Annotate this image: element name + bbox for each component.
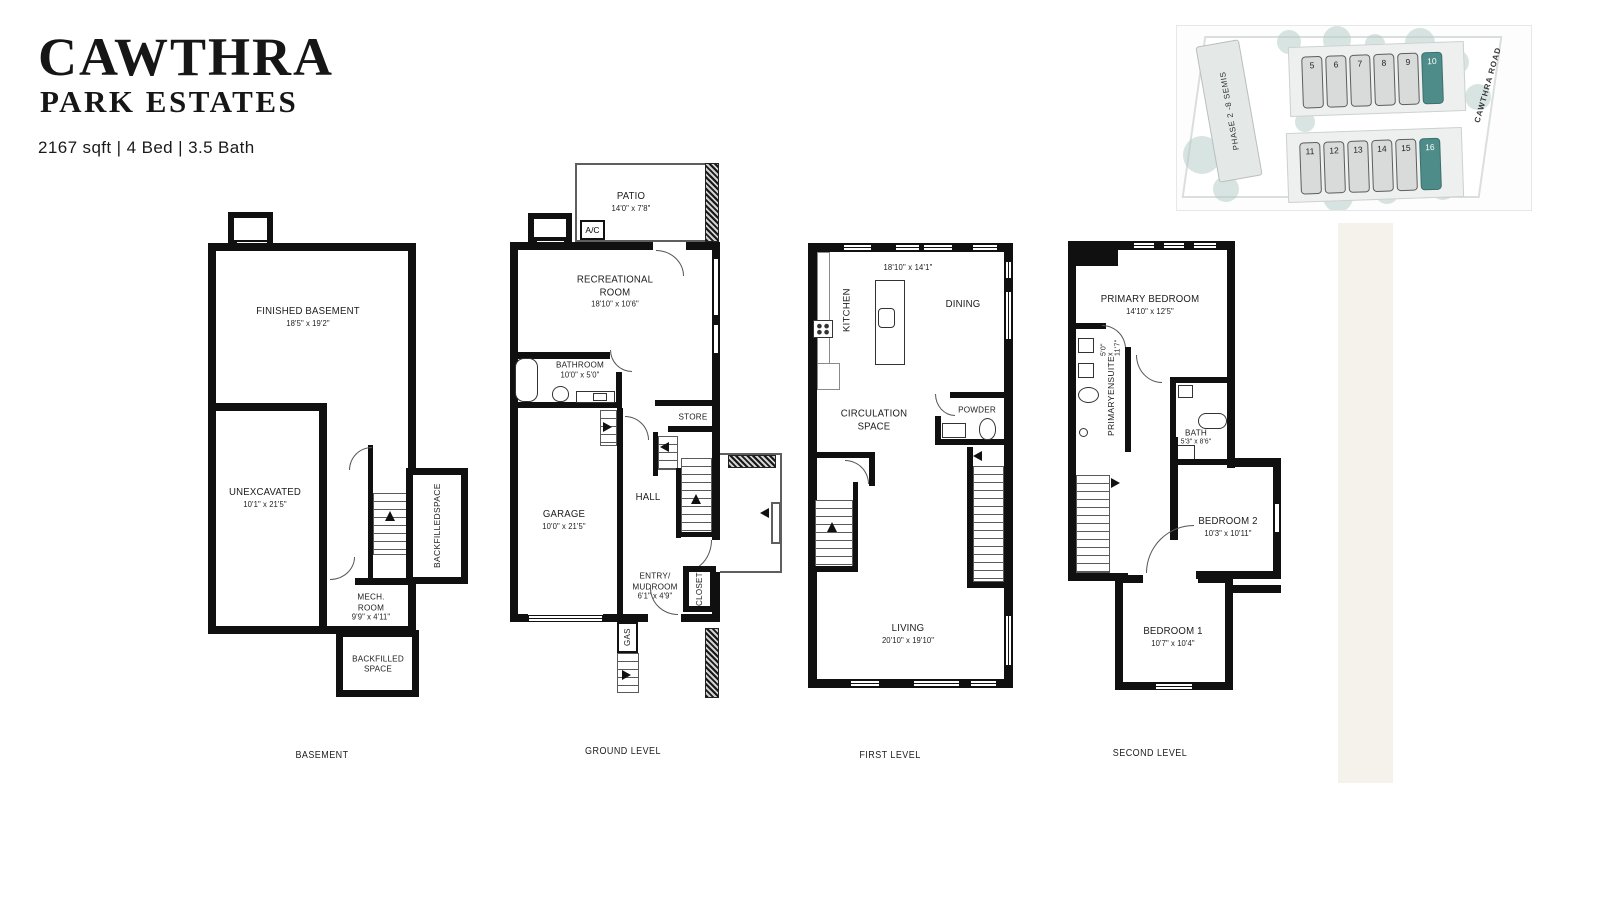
door-arc: [935, 394, 955, 416]
second-level-plan: PRIMARY BEDROOM 14'10" x 12'5" PRIMARY E…: [1048, 235, 1284, 690]
direction-arrow: [385, 511, 395, 521]
caption-basement: BASEMENT: [295, 750, 348, 761]
closet: CLOSET: [683, 566, 716, 612]
room-bath: BATH 5'3" x 8'6": [1181, 427, 1211, 446]
wall: [510, 614, 528, 622]
building-row-2: 11 12 13 14 15 16: [1286, 127, 1464, 203]
sink-icon: [1078, 338, 1094, 353]
lot-6: 6: [1325, 55, 1348, 108]
room-living: LIVING 20'10" x 19'10": [882, 623, 934, 646]
door-arc: [845, 460, 869, 484]
direction-arrow: [603, 422, 612, 432]
wall: [935, 439, 1010, 445]
window: [1274, 503, 1280, 533]
wall: [808, 243, 817, 688]
wall: [668, 426, 720, 432]
lot-5: 5: [1301, 56, 1324, 109]
garage-door: [528, 615, 603, 622]
wall: [319, 403, 327, 634]
window: [1005, 261, 1012, 279]
room-garage: GARAGE 10'0" x 21'5": [542, 509, 585, 532]
window: [923, 244, 953, 251]
window: [1155, 683, 1193, 690]
lot-7: 7: [1349, 54, 1372, 107]
wall: [869, 452, 875, 486]
wall: [208, 403, 327, 411]
floorplan-sheet: CAWTHRA PARK ESTATES 2167 sqft | 4 Bed |…: [0, 0, 1600, 900]
wall: [967, 582, 1013, 588]
door-arc: [330, 557, 355, 580]
page-title: CAWTHRA: [38, 30, 334, 84]
direction-arrow: [827, 522, 837, 532]
overall-dims: 18'10" x 14'1": [883, 263, 932, 273]
sink-icon: [878, 308, 895, 328]
wall: [853, 482, 858, 572]
room-bedroom1: BEDROOM 1 10'7" x 10'4": [1143, 626, 1202, 649]
lot-9: 9: [1397, 53, 1420, 106]
wall: [617, 408, 623, 614]
wall: [1170, 377, 1176, 439]
window: [1005, 615, 1012, 666]
room-bathroom: BATHROOM 10'0" x 5'0": [556, 360, 604, 381]
wall: [208, 243, 216, 634]
door-arc: [610, 350, 632, 372]
window: [1005, 291, 1012, 340]
wall: [208, 243, 416, 251]
wall: [1225, 575, 1233, 690]
stairs: [1076, 475, 1110, 573]
wall: [681, 614, 720, 622]
wall: [510, 242, 518, 622]
wall: [616, 372, 622, 408]
room-mech: MECH. ROOM 9'9" x 4'11": [352, 591, 390, 622]
room-hall: HALL: [636, 492, 661, 505]
site-map: PHASE 2 -8 SEMIS 5 6 7 8 9 10 11 12 13 1…: [1176, 25, 1532, 211]
room-backfilled-side: BACKFILLED SPACE: [406, 468, 468, 584]
lot-14: 14: [1371, 139, 1394, 192]
room-kitchen: KITCHEN: [840, 283, 854, 338]
lot-10-highlighted: 10: [1421, 52, 1444, 105]
room-unexcavated: UNEXCAVATED 10'1" x 21'5": [229, 487, 301, 510]
hedge-icon: [705, 628, 719, 698]
window-well: [528, 213, 572, 243]
caption-first: FIRST LEVEL: [859, 750, 920, 761]
wall: [655, 400, 720, 406]
kitchen-counter: [817, 252, 830, 373]
unit-specs: 2167 sqft | 4 Bed | 3.5 Bath: [38, 138, 255, 158]
room-store: STORE: [679, 412, 708, 423]
entry-arrow: [760, 508, 769, 518]
direction-arrow: [973, 451, 982, 461]
lot-8: 8: [1373, 53, 1396, 106]
wall: [1170, 459, 1227, 465]
wall: [1115, 575, 1123, 690]
room-primary-bedroom: PRIMARY BEDROOM 14'10" x 12'5": [1101, 294, 1200, 317]
wall: [1170, 437, 1178, 540]
ground-level-plan: PATIO 14'0" x 7'8" A/C RECREATIONAL ROOM…: [498, 158, 790, 703]
lot-16-highlighted: 16: [1419, 138, 1442, 191]
stove-icon: [813, 320, 833, 338]
hedge-icon: [705, 163, 719, 242]
toilet-icon: [979, 418, 996, 440]
toilet-icon: [552, 386, 569, 402]
direction-arrow: [660, 442, 669, 452]
wall: [812, 452, 875, 458]
door-arc: [1146, 525, 1194, 573]
lot-15: 15: [1395, 139, 1418, 192]
decorative-strip: [1338, 223, 1393, 783]
basement-plan: FINISHED BASEMENT 18'5" x 19'2" UNEXCAVA…: [203, 205, 478, 700]
lot-12: 12: [1323, 141, 1346, 194]
wall: [603, 614, 648, 622]
phase-label: PHASE 2 -8 SEMIS: [1218, 71, 1241, 151]
window: [713, 324, 719, 354]
stairs: [815, 500, 853, 568]
window: [1193, 242, 1217, 249]
wall: [812, 566, 858, 572]
direction-arrow: [691, 494, 701, 504]
window: [843, 244, 872, 251]
window: [913, 680, 960, 687]
window: [895, 244, 920, 251]
door-arc: [656, 250, 684, 276]
stairs: [373, 493, 408, 555]
cabinet: [817, 363, 840, 390]
light-icon: [1079, 428, 1088, 437]
room-finished-basement: FINISHED BASEMENT 18'5" x 19'2": [256, 306, 360, 329]
page-subtitle: PARK ESTATES: [40, 86, 298, 117]
window: [1163, 242, 1185, 249]
room-bedroom2: BEDROOM 2 10'3" x 10'11": [1198, 516, 1257, 539]
lot-13: 13: [1347, 140, 1370, 193]
wall: [1068, 241, 1076, 581]
hedge-icon: [728, 455, 776, 468]
first-level-plan: 18'10" x 14'1" KITCHEN DINING CIRCULATIO…: [805, 238, 1020, 690]
wall: [1227, 241, 1235, 468]
bathtub-icon: [515, 358, 538, 402]
sink-icon: [1178, 385, 1193, 398]
direction-arrow: [622, 670, 631, 680]
door-arc: [349, 447, 372, 470]
building-row-1: 5 6 7 8 9 10: [1288, 41, 1466, 117]
caption-second: SECOND LEVEL: [1113, 748, 1187, 759]
room-dining: DINING: [946, 299, 981, 312]
window: [713, 258, 719, 316]
ac-unit: A/C: [580, 220, 605, 240]
wall: [676, 532, 712, 537]
direction-arrow: [1111, 478, 1120, 488]
lot-11: 11: [1299, 142, 1322, 195]
room-patio: PATIO 14'0" x 7'8": [611, 191, 650, 214]
sink-icon: [942, 423, 966, 438]
window: [850, 680, 880, 687]
window: [972, 244, 998, 251]
gas-meter: GAS: [617, 622, 638, 653]
porch-column: [771, 502, 781, 544]
window: [1133, 242, 1155, 249]
sink-icon: [593, 393, 607, 401]
wall: [935, 416, 941, 445]
room-recreational: RECREATIONAL ROOM 18'10" x 10'6": [577, 275, 653, 310]
wall: [950, 392, 1010, 398]
room-backfilled-bottom: BACKFILLED SPACE: [336, 630, 419, 697]
sink-icon: [1078, 363, 1094, 378]
wall: [1170, 377, 1227, 383]
stairs: [973, 466, 1004, 582]
door-arc: [650, 588, 678, 615]
caption-ground: GROUND LEVEL: [585, 746, 661, 757]
room-circulation: CIRCULATION SPACE: [841, 409, 907, 434]
room-powder: POWDER: [958, 405, 996, 416]
wall: [510, 242, 653, 250]
door-arc: [1136, 355, 1162, 383]
window: [970, 680, 997, 687]
wall: [1233, 585, 1281, 593]
door-arc: [625, 416, 649, 440]
room-primary-ensuite: PRIMARY ENSUITE 5'0" x 11'7": [1096, 347, 1126, 429]
